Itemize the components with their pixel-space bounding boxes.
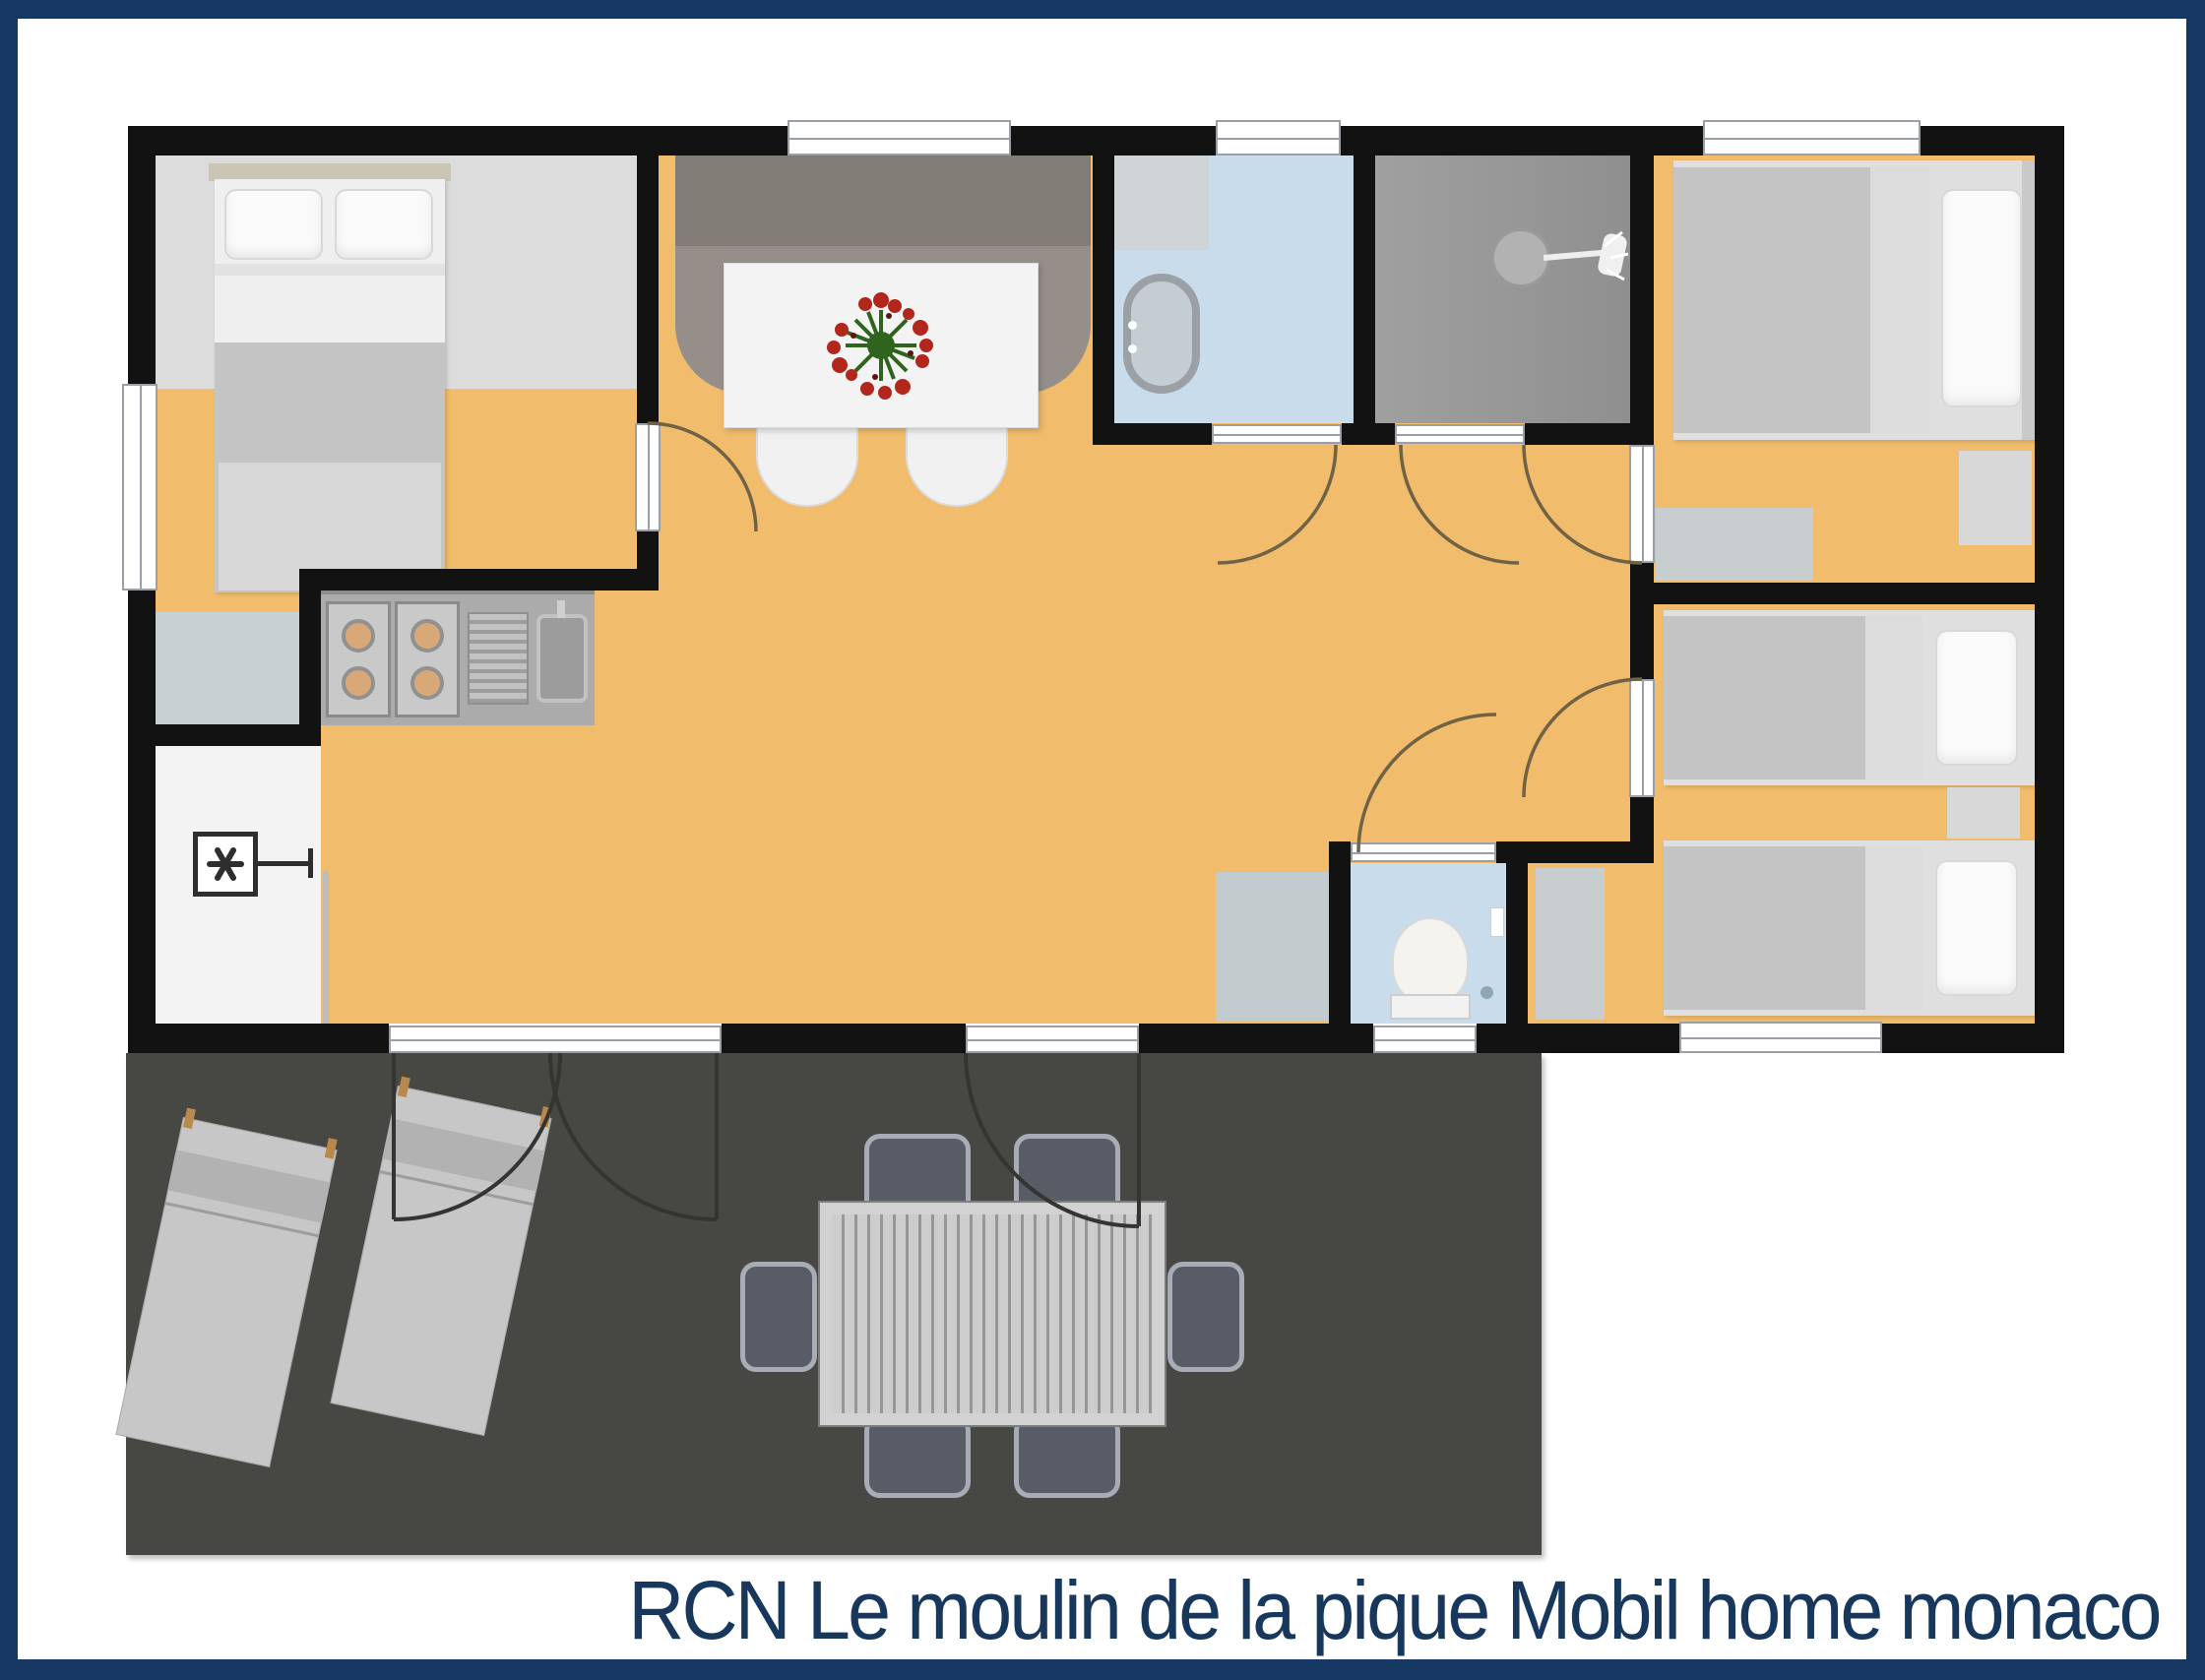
heater-symbol-line [258,861,311,866]
pillow [1935,860,2018,996]
window-wc [1373,1026,1477,1053]
door-wc [1351,842,1496,862]
sink-faucet [557,600,565,618]
door-bathroom [1212,424,1342,444]
washing-machine [1114,156,1209,250]
window-bedroom3 [1703,120,1921,156]
wall-bathroom-bottom [1342,423,1395,445]
frame-border-left [0,0,18,1680]
outdoor-chair [740,1262,817,1372]
flush-button [1480,986,1493,999]
wall-left [128,591,156,1051]
single-bed-sheet [1870,167,1929,433]
twin-bed-a-sheet [1865,616,1922,779]
wall-bottom [722,1024,966,1053]
kitchen-sink [536,614,588,703]
pillow [224,189,323,260]
utility-room-divider [323,871,329,1024]
double-bed-sheet-fold [215,264,445,276]
wall-kitchen [299,569,659,591]
burner [342,666,375,700]
burner [342,619,375,653]
wall-bedrooms-divider [1630,583,2035,604]
basin-faucet-dot [1128,344,1137,353]
wall-bottom [1882,1024,2064,1053]
twin-bed-b-blanket [1664,846,1865,1010]
wall-wc-top [1496,841,1654,863]
wall-top [1011,126,1216,156]
single-bed-blanket [1673,167,1870,433]
floorplan-image: RCN Le moulin de la pique Mobil home mon… [0,0,2205,1680]
door-bedroom4 [1629,679,1655,797]
wall-utility [128,724,321,746]
door-terrace-double [389,1026,722,1053]
fridge [156,612,299,740]
twin-bed-b-sheet [1865,846,1922,1010]
toilet-paper-holder [1490,907,1504,937]
single-bed-headboard [2022,160,2035,440]
outdoor-table [820,1203,1165,1425]
wall-wc-left [1329,841,1351,1051]
heater-symbol-box [193,832,258,897]
frame-border-bottom [0,1659,2205,1680]
shower-head [1491,228,1550,287]
window-living [787,120,1011,156]
washbasin [1123,274,1200,394]
wall-master-bedroom [637,156,659,423]
wall-top [128,126,787,156]
wardrobe [1536,868,1605,1020]
door-bedroom3 [1629,445,1655,563]
wall-right [2035,126,2064,1051]
pillow [1941,189,2022,407]
sink-drainboard [468,612,529,705]
door-shower [1395,424,1525,444]
wall-bedroom3-left [1630,126,1654,445]
wall-left [128,126,156,384]
burner [410,619,444,653]
sideboard [1216,872,1341,1022]
window-bedroom4 [1679,1022,1882,1053]
wall-bath-shower-divider [1354,156,1375,423]
shower-room-floor [1375,156,1630,423]
outdoor-chair [864,1415,971,1498]
wall-bedroom4-left [1630,604,1654,679]
heater-symbol-tick [308,848,313,878]
window-master-bedroom [122,384,157,591]
wall-bathroom-left [1093,156,1114,445]
toilet-bowl [1392,917,1469,1004]
twin-bed-a-blanket [1664,616,1865,779]
basin-faucet-dot [1128,321,1137,330]
toilet-tank [1390,994,1471,1020]
outdoor-chair [1014,1415,1120,1498]
door-terrace-single [966,1026,1139,1053]
pillow [1935,630,2018,766]
door-master-bedroom [635,423,661,531]
floor-mat [1959,451,2032,545]
wall-bottom [128,1024,389,1053]
page-title: RCN Le moulin de la pique Mobil home mon… [629,1563,2160,1658]
nightstand [1947,787,2020,839]
wall-kitchen [299,591,321,746]
pillow [335,189,433,260]
frame-border-right [2186,0,2205,1680]
window-bathroom [1216,120,1341,156]
burner [410,666,444,700]
wall-bathroom-bottom [1114,423,1212,445]
dining-table [724,263,1039,428]
outdoor-chair [1167,1262,1244,1372]
dresser [1656,508,1813,581]
wall-bathroom-bottom [1525,423,1630,445]
frame-border-top [0,0,2205,19]
wall-wc-right [1506,863,1528,1051]
